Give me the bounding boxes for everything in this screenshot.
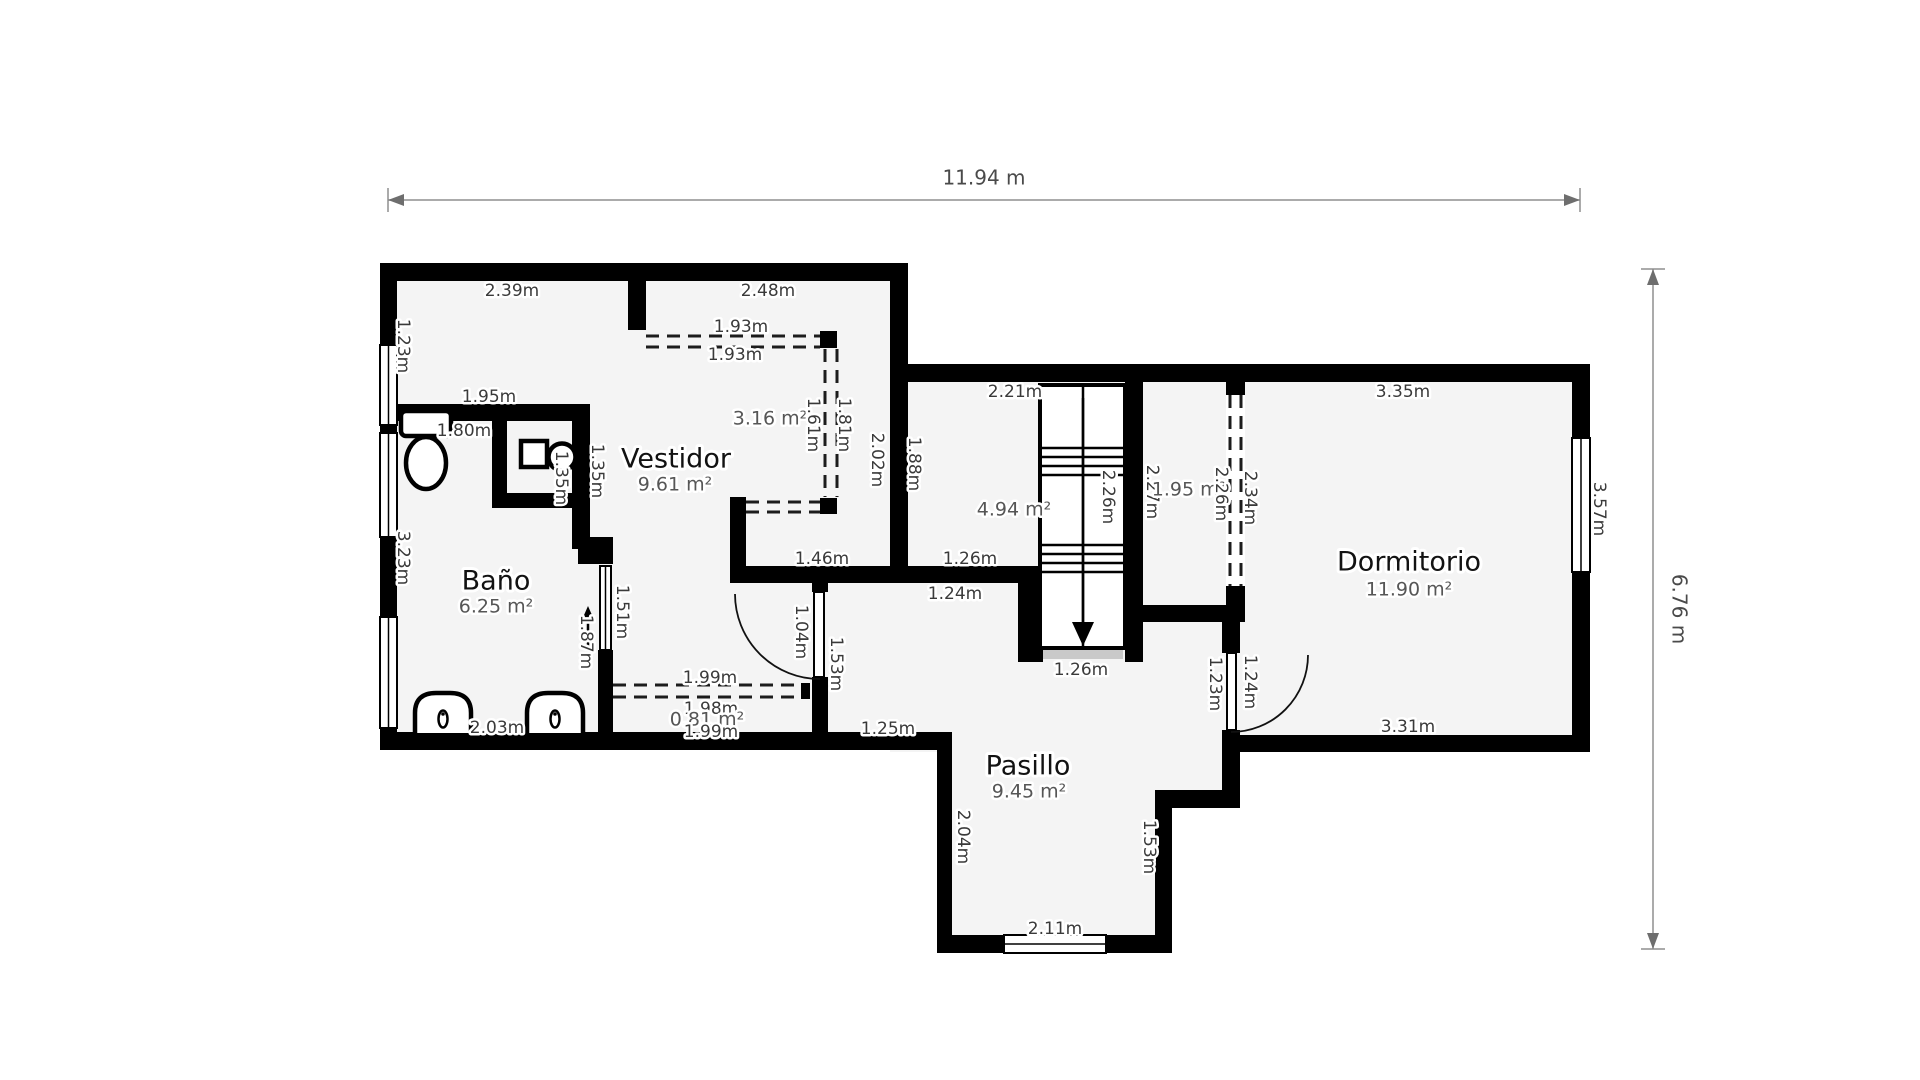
dim-label: 1.93m [714, 317, 768, 337]
dim-label: 1.95m [462, 387, 516, 407]
wall [492, 493, 590, 508]
room-area-vestidor: 9.61 m² [638, 474, 712, 496]
dim-label: 1.99m [683, 668, 737, 688]
dim-label: 2.26m [1098, 470, 1118, 524]
dim-label: 3.31m [1381, 717, 1435, 737]
wall [890, 281, 908, 566]
toilet-bowl [406, 437, 446, 489]
dim-label: 1.04m [791, 605, 811, 659]
dim-label: 1.51m [612, 585, 632, 639]
dim-label: 1.80m [437, 421, 491, 441]
closet-corner [820, 498, 837, 514]
dim-label: 1.23m [393, 319, 413, 373]
door-frame [1227, 653, 1236, 730]
dim-label: 1.87m [576, 615, 596, 669]
wall [598, 650, 613, 732]
floor-plan-canvas: 11.94 m 6.76 m Baño 6.25 m² Vestidor 9.6… [0, 0, 1920, 1080]
dim-label: 1.25m [861, 719, 915, 739]
wall [812, 677, 828, 732]
dim-label: 1.26m [1054, 660, 1108, 680]
dim-label: 2.48m [741, 281, 795, 301]
wall [1222, 730, 1240, 808]
dim-label: 1.23m [1205, 657, 1225, 711]
washbasin-square [521, 441, 547, 467]
wall [1155, 790, 1222, 808]
fixture-dot [553, 712, 557, 716]
dim-label: 1.61m [803, 398, 823, 452]
overall-height-label: 6.76 m [1668, 574, 1692, 644]
dimension-arrow-icon [1647, 933, 1659, 949]
fixture-dot [441, 712, 445, 716]
wall [1222, 735, 1590, 752]
dim-label: 2.26m [1211, 467, 1231, 521]
dim-label: 2.34m [1240, 471, 1260, 525]
wall [1222, 622, 1240, 653]
dimension-arrow-icon [1647, 269, 1659, 285]
door-frame [814, 592, 824, 677]
room-area-bano: 6.25 m² [459, 596, 533, 618]
wardrobe-corner [801, 683, 810, 699]
dim-label: 2.39m [485, 281, 539, 301]
dimension-arrow-icon [388, 194, 404, 206]
dim-label: 1.53m [1139, 820, 1159, 874]
room-name-bano: Baño [462, 566, 531, 597]
dim-label: 3.57m [1589, 482, 1609, 536]
dim-label: 1.35m [551, 451, 571, 505]
dim-label: 1.24m [1240, 655, 1260, 709]
room-area-dormitorio: 11.90 m² [1366, 579, 1453, 601]
wall [1143, 605, 1240, 622]
dim-label: 1.81m [834, 398, 854, 452]
wall [937, 750, 952, 935]
dim-label: 1.26m [943, 549, 997, 569]
wall [628, 263, 646, 330]
wall [890, 364, 1590, 382]
room-area-pasillo: 9.45 m² [992, 781, 1066, 803]
sub-area-label: 3.16 m² [733, 408, 807, 430]
dim-label: 1.99m [684, 722, 738, 742]
dim-label: 2.21m [988, 382, 1042, 402]
dimension-arrow-icon [1564, 194, 1580, 206]
room-name-vestidor: Vestidor [621, 444, 732, 475]
dim-label: 2.04m [953, 810, 973, 864]
overall-width-label: 11.94 m [942, 166, 1025, 190]
wall [1226, 586, 1245, 622]
dim-label: 1.88m [904, 437, 924, 491]
wall [812, 580, 828, 592]
dim-label: 2.11m [1028, 919, 1082, 939]
sub-area-label: 4.94 m² [977, 499, 1051, 521]
stair-landing-strip [1043, 650, 1123, 659]
dim-label: 2.03m [470, 718, 524, 738]
room-name-dormitorio: Dormitorio [1337, 547, 1481, 578]
wall [578, 537, 613, 564]
dim-label: 1.35m [587, 444, 607, 498]
wall [1226, 382, 1245, 395]
closet-corner [820, 331, 837, 348]
wall [1125, 382, 1143, 662]
dim-label: 3.23m [393, 531, 413, 585]
dim-label: 3.35m [1376, 382, 1430, 402]
dim-label: 1.46m [795, 549, 849, 569]
dim-label: 1.24m [928, 584, 982, 604]
dim-label: 2.02m [867, 433, 887, 487]
room-name-pasillo: Pasillo [986, 751, 1071, 782]
dim-label: 1.53m [826, 637, 846, 691]
dim-label: 1.93m [708, 345, 762, 365]
